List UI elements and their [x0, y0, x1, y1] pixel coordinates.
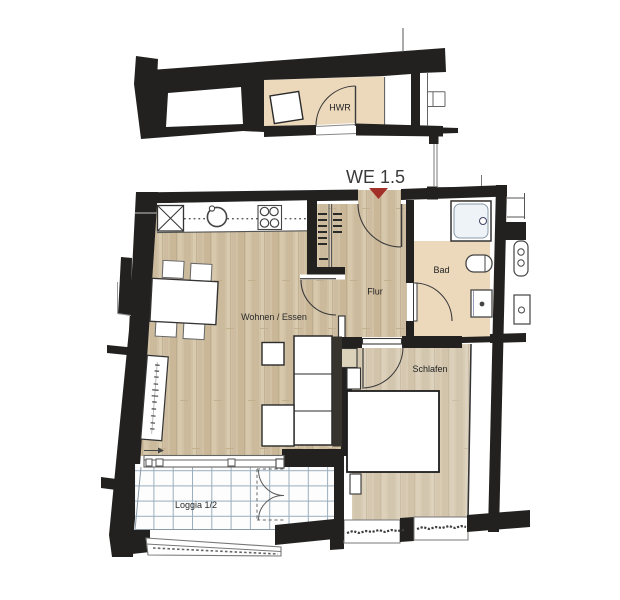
svg-text:Loggia 1/2: Loggia 1/2: [175, 500, 217, 510]
svg-text:Bad: Bad: [433, 265, 449, 275]
svg-text:Wohnen / Essen: Wohnen / Essen: [241, 312, 307, 322]
svg-text:Schlafen: Schlafen: [412, 364, 447, 374]
svg-text:WE 1.5: WE 1.5: [346, 167, 405, 187]
svg-text:HWR: HWR: [329, 103, 351, 113]
svg-text:Flur: Flur: [367, 287, 383, 297]
